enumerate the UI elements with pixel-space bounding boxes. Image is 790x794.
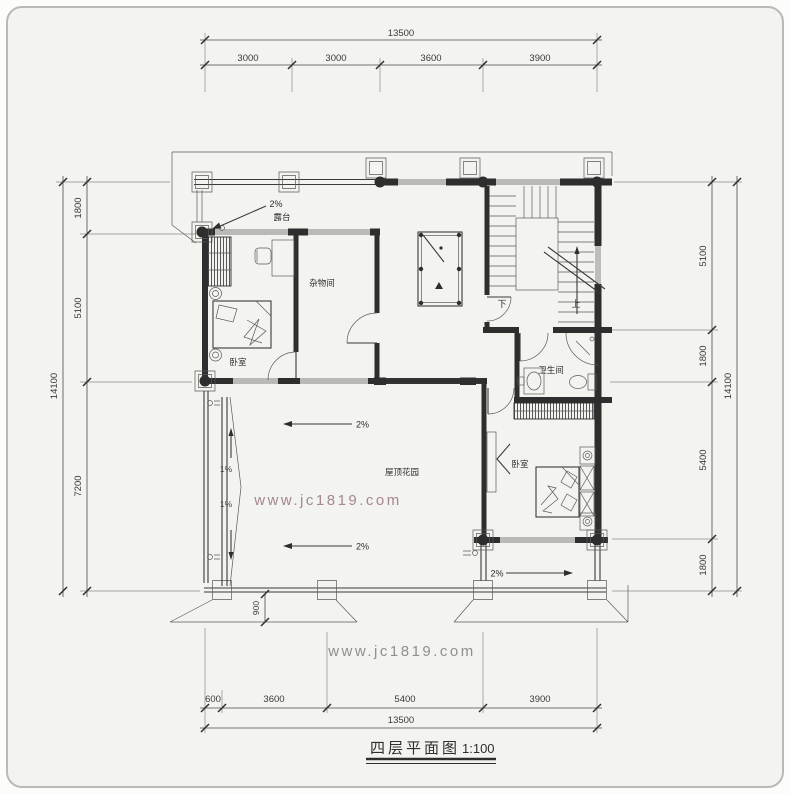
dim-right-seg3: 5400 — [698, 449, 709, 470]
room-label-bathroom: 卫生间 — [538, 365, 564, 375]
bedroom2-furniture — [487, 432, 595, 530]
dim-left-seg2: 5100 — [73, 297, 84, 318]
dim-bottom-seg2: 3600 — [263, 694, 284, 705]
watermarks: www.jc1819.com www.jc1819.com — [253, 492, 476, 660]
title-block: 四层平面图 1:100 — [366, 740, 496, 764]
dim-left-seg3: 7200 — [73, 475, 84, 496]
dim-bottom-seg3: 5400 — [394, 694, 415, 705]
watermark-bottom: www.jc1819.com — [327, 643, 476, 660]
dim-chain-left: 14100 1800 5100 7200 — [49, 176, 200, 597]
dim-left-seg1: 1800 — [73, 197, 84, 218]
dim-right-seg4: 1800 — [698, 554, 709, 575]
stair-down-label: 下 — [497, 299, 506, 309]
dim-right-total: 14100 — [723, 373, 734, 399]
windows — [215, 179, 602, 544]
dim-eave-offset: 900 — [251, 601, 261, 615]
room-label-bedroom2: 卧室 — [511, 459, 529, 469]
floor-plan-drawing: 13500 3000 3000 3600 3900 14100 1800 510… — [0, 0, 790, 794]
stair-up-label: 上 — [571, 299, 580, 309]
dim-bottom-seg1: 600 — [205, 694, 221, 705]
staircase: 下 上 — [489, 186, 605, 322]
slope-drain-upper: 1% — [220, 464, 233, 474]
slope-drain-lower: 1% — [220, 499, 233, 509]
doors — [268, 297, 548, 414]
dim-chain-right: 5100 1800 5400 1800 14100 — [608, 176, 742, 597]
slope-terrace: 2% — [269, 199, 282, 209]
bathroom-fixtures — [514, 333, 598, 419]
dim-right-seg2: 1800 — [698, 345, 709, 366]
dim-top-seg3: 3600 — [420, 53, 441, 64]
dim-bottom-seg4: 3900 — [529, 694, 550, 705]
room-labels: 露台 杂物间 卧室 卫生间 卧室 屋顶花园 — [229, 212, 563, 477]
drawing-scale: 1:100 — [462, 741, 495, 756]
watermark-center: www.jc1819.com — [253, 492, 402, 509]
drawing-title: 四层平面图 — [370, 740, 460, 757]
slope-garden-lower: 2% — [356, 542, 369, 552]
dim-bottom-total: 13500 — [388, 715, 414, 726]
slope-bedroom2-south: 2% — [490, 569, 503, 579]
screenshot-frame: 13500 3000 3000 3600 3900 14100 1800 510… — [0, 0, 790, 794]
room-label-bedroom1: 卧室 — [229, 357, 247, 367]
room-label-storage: 杂物间 — [309, 278, 335, 288]
room-label-roof-garden: 屋顶花园 — [385, 467, 419, 477]
room-label-terrace: 露台 — [273, 212, 290, 222]
dim-left-total: 14100 — [49, 373, 60, 399]
dim-top-total: 13500 — [388, 28, 414, 39]
bedroom1-furniture — [208, 237, 294, 361]
dim-top-seg1: 3000 — [237, 53, 258, 64]
dim-top-seg2: 3000 — [325, 53, 346, 64]
dim-chain-top: 13500 3000 3000 3600 3900 — [200, 28, 602, 92]
dim-right-seg1: 5100 — [698, 245, 709, 266]
dim-top-seg4: 3900 — [529, 53, 550, 64]
slope-garden-upper: 2% — [356, 420, 369, 430]
billiard-table — [418, 232, 462, 306]
